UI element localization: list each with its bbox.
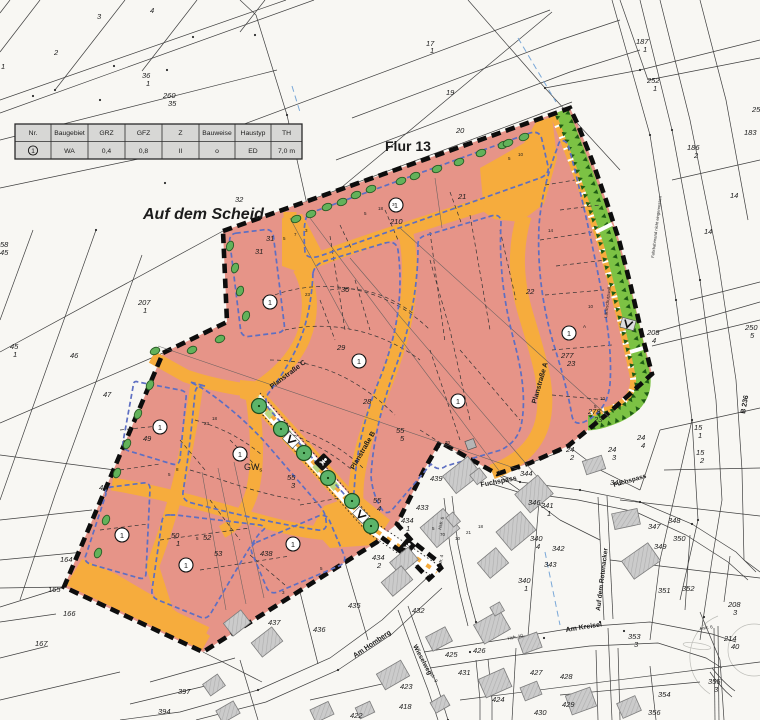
svg-text:14: 14 xyxy=(704,227,712,236)
svg-text:WA: WA xyxy=(64,148,75,155)
svg-text:425: 425 xyxy=(445,650,458,659)
svg-text:1: 1 xyxy=(524,584,528,593)
svg-text:397: 397 xyxy=(178,687,191,696)
svg-text:18: 18 xyxy=(212,416,218,421)
svg-text:346: 346 xyxy=(528,498,541,507)
svg-text:183: 183 xyxy=(744,128,757,137)
svg-text:0,8: 0,8 xyxy=(139,148,149,155)
svg-text:GFZ: GFZ xyxy=(137,130,151,137)
svg-text:48: 48 xyxy=(99,483,108,492)
svg-text:10: 10 xyxy=(588,304,594,309)
svg-text:1: 1 xyxy=(430,46,434,55)
svg-text:167: 167 xyxy=(35,639,48,648)
svg-text:1: 1 xyxy=(394,201,398,210)
svg-text:52: 52 xyxy=(203,533,212,542)
svg-text:Baugebiet: Baugebiet xyxy=(54,130,85,137)
svg-text:430: 430 xyxy=(534,708,547,717)
svg-text:1: 1 xyxy=(120,531,124,540)
svg-text:49: 49 xyxy=(143,434,152,443)
svg-text:351: 351 xyxy=(658,586,671,595)
svg-text:210: 210 xyxy=(389,217,403,226)
svg-text:14: 14 xyxy=(730,191,738,200)
svg-text:424: 424 xyxy=(492,695,505,704)
svg-text:14: 14 xyxy=(548,228,554,233)
svg-text:426: 426 xyxy=(473,646,486,655)
svg-text:345: 345 xyxy=(610,478,623,487)
svg-text:422: 422 xyxy=(350,711,363,720)
svg-text:A: A xyxy=(583,324,586,329)
svg-text:18: 18 xyxy=(378,206,384,211)
svg-text:A: A xyxy=(437,444,440,449)
svg-text:4: 4 xyxy=(641,441,645,450)
svg-text:164: 164 xyxy=(60,555,73,564)
svg-text:19: 19 xyxy=(446,88,455,97)
svg-text:30: 30 xyxy=(341,285,350,294)
svg-text:165: 165 xyxy=(48,585,61,594)
svg-text:1: 1 xyxy=(31,148,35,155)
svg-text:II: II xyxy=(179,148,183,155)
svg-text:348: 348 xyxy=(668,516,681,525)
svg-text:1: 1 xyxy=(291,540,295,549)
svg-text:1: 1 xyxy=(643,45,647,54)
svg-text:1: 1 xyxy=(158,423,162,432)
svg-text:354: 354 xyxy=(658,690,671,699)
svg-text:1: 1 xyxy=(456,397,460,406)
svg-text:433: 433 xyxy=(416,503,429,512)
svg-text:2: 2 xyxy=(53,48,59,57)
svg-text:53: 53 xyxy=(214,549,223,558)
svg-text:1: 1 xyxy=(146,79,150,88)
svg-text:1: 1 xyxy=(13,350,17,359)
svg-text:23: 23 xyxy=(566,359,576,368)
svg-text:10: 10 xyxy=(455,536,461,541)
svg-text:21: 21 xyxy=(466,530,472,535)
svg-text:166: 166 xyxy=(63,609,76,618)
svg-text:2: 2 xyxy=(693,151,699,160)
svg-text:Haustyp: Haustyp xyxy=(241,130,266,137)
svg-text:23: 23 xyxy=(204,421,210,426)
svg-text:21: 21 xyxy=(457,192,466,201)
svg-text:1: 1 xyxy=(1,62,5,71)
svg-text:Bauweise: Bauweise xyxy=(202,130,232,137)
svg-text:2: 2 xyxy=(376,561,382,570)
svg-text:o: o xyxy=(215,148,219,155)
svg-text:45: 45 xyxy=(0,248,9,257)
svg-text:29: 29 xyxy=(336,343,346,352)
svg-text:435: 435 xyxy=(348,601,361,610)
svg-text:TH: TH xyxy=(282,130,291,137)
svg-text:10: 10 xyxy=(518,152,524,157)
svg-text:356: 356 xyxy=(648,708,661,717)
svg-text:31: 31 xyxy=(266,234,274,243)
svg-text:40: 40 xyxy=(731,642,740,651)
svg-text:431: 431 xyxy=(458,668,471,677)
svg-text:Nr.: Nr. xyxy=(29,130,38,137)
svg-text:Flur 13: Flur 13 xyxy=(385,138,431,154)
svg-text:Z: Z xyxy=(178,130,182,137)
svg-text:31: 31 xyxy=(255,247,263,256)
svg-text:4: 4 xyxy=(536,542,540,551)
svg-text:344: 344 xyxy=(520,469,533,478)
svg-text:Auf dem Scheid: Auf dem Scheid xyxy=(142,206,265,223)
svg-text:4: 4 xyxy=(377,504,381,513)
svg-text:18: 18 xyxy=(478,524,484,529)
svg-text:23: 23 xyxy=(305,292,311,297)
svg-text:28: 28 xyxy=(362,397,372,406)
svg-text:1: 1 xyxy=(653,84,657,93)
svg-text:1: 1 xyxy=(143,306,147,315)
svg-text:1: 1 xyxy=(184,561,188,570)
svg-text:418: 418 xyxy=(399,702,412,711)
svg-text:10: 10 xyxy=(600,396,606,401)
svg-text:352: 352 xyxy=(682,584,695,593)
svg-text:253: 253 xyxy=(751,105,760,114)
svg-text:70: 70 xyxy=(445,440,451,445)
svg-text:32: 32 xyxy=(235,195,244,204)
svg-text:429: 429 xyxy=(562,700,575,709)
svg-text:394: 394 xyxy=(158,707,171,716)
svg-text:1: 1 xyxy=(357,357,361,366)
svg-text:349: 349 xyxy=(654,542,667,551)
svg-text:438: 438 xyxy=(260,549,273,558)
svg-text:2: 2 xyxy=(569,453,575,462)
svg-text:1: 1 xyxy=(567,329,571,338)
svg-text:70: 70 xyxy=(440,532,446,537)
svg-text:ED: ED xyxy=(248,148,258,155)
svg-text:47: 47 xyxy=(103,390,112,399)
svg-text:20: 20 xyxy=(455,126,465,135)
svg-text:436: 436 xyxy=(313,625,326,634)
svg-text:GRZ: GRZ xyxy=(99,130,113,137)
svg-text:2: 2 xyxy=(699,456,705,465)
svg-text:350: 350 xyxy=(673,534,686,543)
svg-text:0,4: 0,4 xyxy=(102,148,112,155)
svg-text:428: 428 xyxy=(560,672,573,681)
svg-text:35: 35 xyxy=(168,99,177,108)
svg-text:432: 432 xyxy=(412,606,425,615)
svg-text:423: 423 xyxy=(400,682,413,691)
svg-text:46: 46 xyxy=(70,351,79,360)
svg-text:347: 347 xyxy=(648,522,661,531)
svg-text:1: 1 xyxy=(547,509,551,518)
svg-text:7,0 m: 7,0 m xyxy=(278,148,295,155)
svg-text:4: 4 xyxy=(652,336,656,345)
svg-text:343: 343 xyxy=(544,560,557,569)
svg-text:1: 1 xyxy=(698,431,702,440)
svg-text:1: 1 xyxy=(238,450,242,459)
svg-text:427: 427 xyxy=(530,668,543,677)
svg-text:23: 23 xyxy=(593,415,603,424)
svg-text:1: 1 xyxy=(268,298,272,307)
svg-text:1: 1 xyxy=(176,539,180,548)
svg-text:1: 1 xyxy=(406,524,410,533)
svg-text:437: 437 xyxy=(268,618,281,627)
svg-text:439: 439 xyxy=(430,474,443,483)
svg-text:342: 342 xyxy=(552,544,565,553)
svg-text:22: 22 xyxy=(525,287,535,296)
svg-text:4: 4 xyxy=(150,6,154,15)
